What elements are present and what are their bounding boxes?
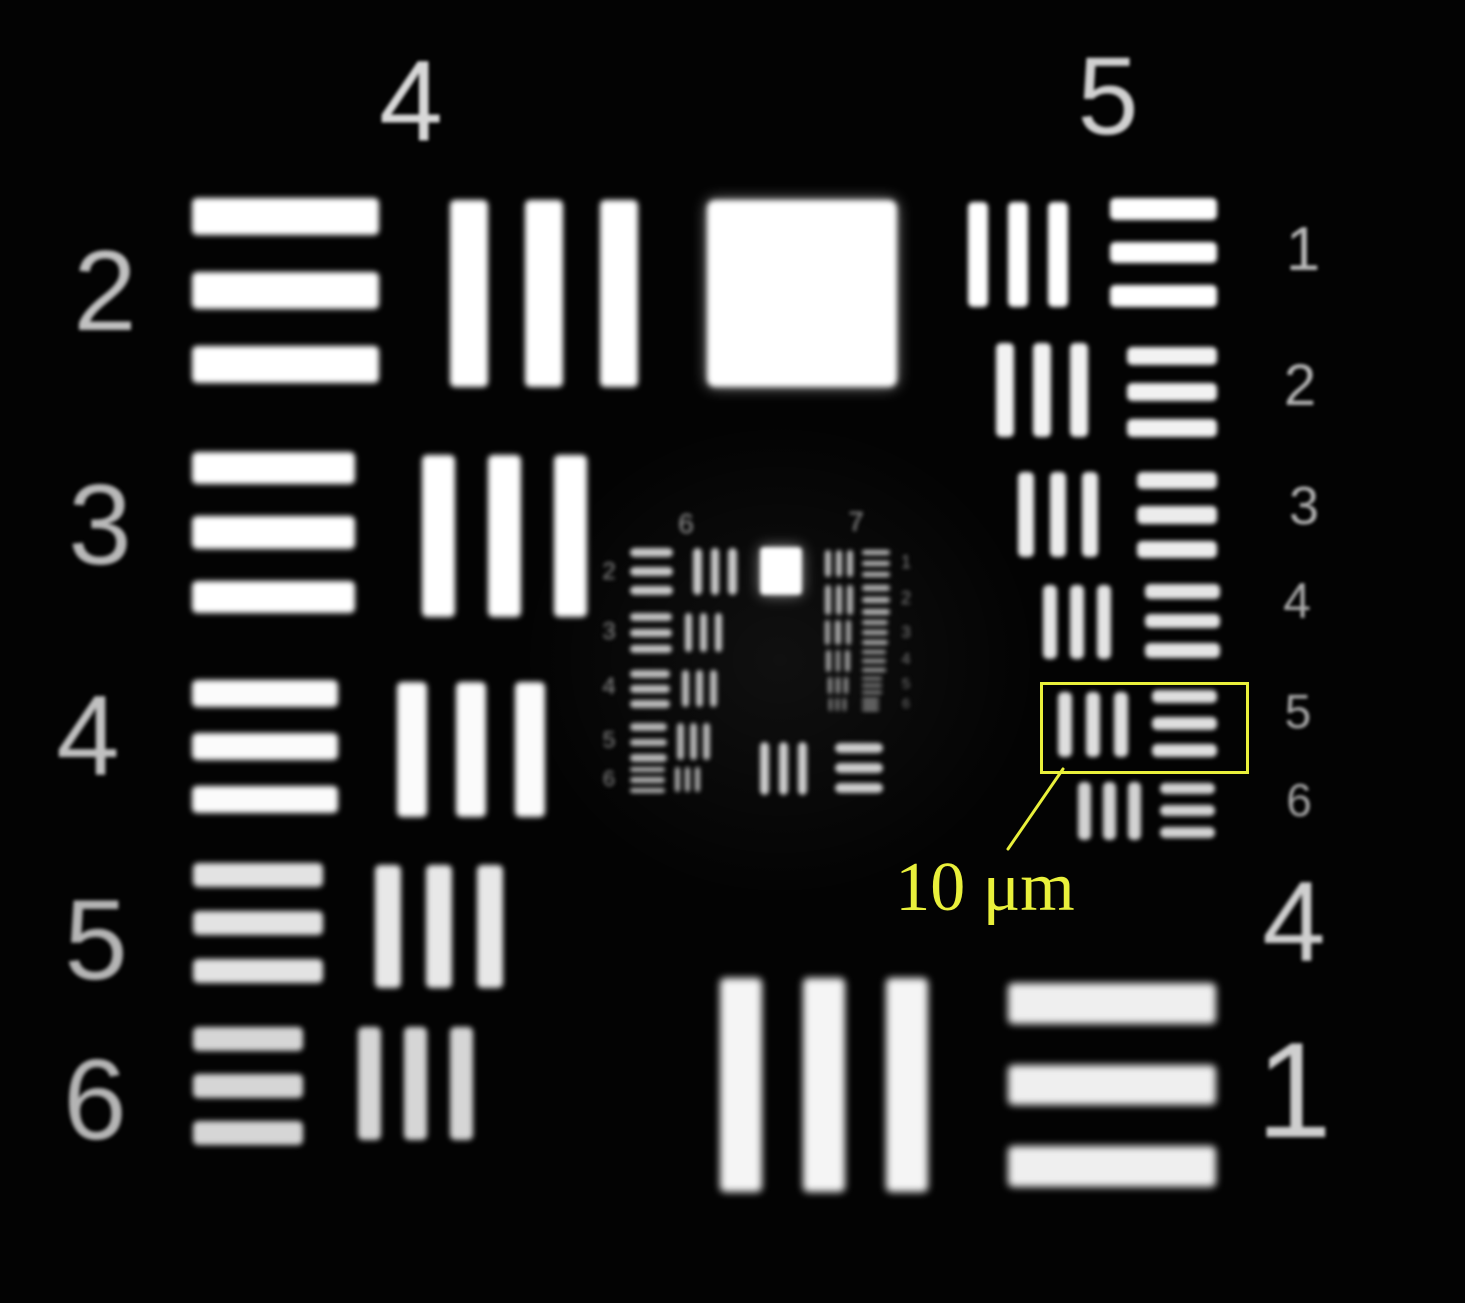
g4-el3-vbars-bar xyxy=(488,455,521,617)
g6-el1-vbars xyxy=(760,742,807,795)
g5-el2-number: 2 xyxy=(1284,357,1316,415)
g5-el5-vbars-bar xyxy=(1114,692,1128,757)
g5-el2-vbars-bar xyxy=(996,343,1014,437)
g5-el5-vbars xyxy=(1058,692,1128,757)
g4-el4-hbars xyxy=(192,680,338,813)
g5-el4-hbars-bar xyxy=(1145,643,1220,658)
g4-el6-hbars xyxy=(193,1027,303,1145)
g7-el4-hbars-bar xyxy=(862,650,886,654)
g7-el2-number: 2 xyxy=(901,589,911,607)
g6-el2-number: 2 xyxy=(602,560,615,584)
g7-el6-vbars xyxy=(829,698,846,711)
g4-el1-hbars-bar xyxy=(1008,1146,1216,1187)
g6-el3-vbars xyxy=(685,613,722,652)
g5-el5-vbars-bar xyxy=(1086,692,1100,757)
g7-el4-hbars-bar xyxy=(862,668,886,672)
g4-el4-hbars-bar xyxy=(192,786,338,813)
g4-el4-vbars-bar xyxy=(456,682,486,817)
g4-el1-vbars-bar xyxy=(720,978,762,1192)
g4-el5-hbars-bar xyxy=(193,911,323,935)
g7-el1-number: 1 xyxy=(901,553,911,571)
g6-el4-hbars-bar xyxy=(630,685,670,693)
g7-el5-vbars-bar xyxy=(836,677,840,694)
g7-el4-vbars-bar xyxy=(826,650,831,672)
g5-el6-hbars-bar xyxy=(1160,805,1215,816)
g5-el1-vbars xyxy=(968,202,1068,307)
g5-el3-vbars xyxy=(1018,472,1098,557)
g4-el6-vbars xyxy=(358,1027,473,1140)
g5-el1-hbars-bar xyxy=(1110,198,1217,220)
g7-el6-vbars-bar xyxy=(836,698,839,711)
g7-el1-vbars-bar xyxy=(847,550,853,577)
g6-el4-vbars-bar xyxy=(710,670,717,707)
g5-el1-hbars xyxy=(1110,198,1217,307)
g6-el4-vbars-bar xyxy=(696,670,703,707)
leader-line xyxy=(1008,769,1063,849)
g6-el5-hbars-bar xyxy=(630,739,667,747)
g5-el4-hbars-bar xyxy=(1145,614,1220,629)
g4-el3-vbars-bar xyxy=(422,455,455,617)
g7-el2-vbars-bar xyxy=(825,585,831,615)
g7-el3-hbars-bar xyxy=(862,630,888,635)
g6-el2-vbars-bar xyxy=(711,548,720,595)
g6-el5-vbars xyxy=(677,723,710,760)
g6-el5-number: 5 xyxy=(603,729,616,752)
g4-el4-hbars-bar xyxy=(192,680,338,707)
g5-el2-vbars-bar xyxy=(1033,343,1051,437)
g6-el1-vbars-bar xyxy=(760,742,769,795)
g4-el3-hbars-bar xyxy=(192,581,355,613)
g4-el4-vbars xyxy=(397,682,545,817)
g5-el3-hbars-bar xyxy=(1137,541,1217,558)
g4-el1-hbars-bar xyxy=(1008,983,1216,1024)
g6-el5-hbars xyxy=(630,723,667,762)
g4-el4-number: 4 xyxy=(56,680,119,794)
g5-el2-hbars-bar xyxy=(1127,347,1217,365)
g7-el5-hbars-bar xyxy=(862,677,882,680)
g5-el4-hbars-bar xyxy=(1145,584,1220,599)
g7-el2-hbars-bar xyxy=(862,597,890,603)
g4-el6-vbars-bar xyxy=(404,1027,427,1140)
g4-el1-vbars xyxy=(720,978,928,1192)
g6-el2-vbars-bar xyxy=(693,548,702,595)
g7-el3-vbars-bar xyxy=(846,620,851,645)
g4-el5-hbars-bar xyxy=(193,959,323,983)
g5-el4-vbars-bar xyxy=(1097,585,1111,659)
g5-el3-vbars-bar xyxy=(1018,472,1034,557)
g7-el5-hbars xyxy=(862,677,882,694)
g4-el6-hbars-bar xyxy=(193,1121,303,1145)
g4-el1-hbars-bar xyxy=(1008,1065,1216,1106)
g6-el4-hbars xyxy=(630,670,670,708)
g4-el6-hbars-bar xyxy=(193,1027,303,1051)
big-square xyxy=(707,200,897,387)
g5-el2-hbars xyxy=(1127,347,1217,437)
g4-el5-vbars-bar xyxy=(375,865,401,988)
g7-el5-vbars-bar xyxy=(844,677,848,694)
g7-el4-vbars xyxy=(826,650,850,672)
g6-el2-hbars-bar xyxy=(630,548,673,557)
g6-el1-hbars-bar xyxy=(835,783,883,793)
g6-el6-vbars xyxy=(675,767,700,792)
g7-el4-vbars-bar xyxy=(845,650,850,672)
g7-el4-hbars xyxy=(862,650,886,672)
g7-el5-hbars-bar xyxy=(862,684,882,687)
g4-el6-hbars-bar xyxy=(193,1074,303,1098)
g6-el1-hbars xyxy=(835,743,883,793)
g7-el2-vbars-bar xyxy=(836,585,842,615)
group-4-label-bottom: 4 xyxy=(1262,866,1325,980)
g7-el1-hbars xyxy=(862,550,890,577)
g7-el4-hbars-bar xyxy=(862,659,886,663)
g5-el6-vbars-bar xyxy=(1128,782,1141,840)
g5-el6-vbars-bar xyxy=(1078,782,1091,840)
g6-el3-hbars-bar xyxy=(630,645,672,653)
g5-el5-hbars xyxy=(1152,690,1217,757)
g4-el2-number: 2 xyxy=(73,235,136,349)
g7-el1-hbars-bar xyxy=(862,572,890,577)
g5-el6-hbars xyxy=(1160,783,1215,838)
g6-el3-vbars-bar xyxy=(700,613,707,652)
g6-el4-hbars-bar xyxy=(630,700,670,708)
g5-el4-number: 4 xyxy=(1283,576,1311,626)
g5-el5-hbars-bar xyxy=(1152,744,1217,757)
g4-el3-hbars xyxy=(192,452,355,613)
g6-el2-hbars xyxy=(630,548,673,595)
g6-el2-hbars-bar xyxy=(630,586,673,595)
g4-el2-vbars-bar xyxy=(525,200,563,387)
g5-el5-number: 5 xyxy=(1285,689,1312,737)
g4-el3-hbars-bar xyxy=(192,516,355,548)
g7-el2-hbars xyxy=(862,585,890,615)
g6-el3-hbars-bar xyxy=(630,613,672,621)
g5-el2-hbars-bar xyxy=(1127,383,1217,401)
scale-label: 10 μm xyxy=(895,853,1074,923)
group-5-label-top: 5 xyxy=(1077,42,1138,152)
g6-el1-hbars-bar xyxy=(835,743,883,753)
g7-el2-hbars-bar xyxy=(862,585,890,591)
g5-el6-vbars xyxy=(1078,782,1141,840)
g6-el1-vbars-bar xyxy=(779,742,788,795)
g6-el1-hbars-bar xyxy=(835,763,883,773)
g6-el6-hbars-bar xyxy=(630,767,665,772)
g5-el4-vbars-bar xyxy=(1070,585,1084,659)
g7-el6-vbars-bar xyxy=(829,698,832,711)
g6-el6-vbars-bar xyxy=(675,767,680,792)
g4-el4-hbars-bar xyxy=(192,733,338,760)
g7-el1-hbars-bar xyxy=(862,550,890,555)
g4-el6-number: 6 xyxy=(63,1044,126,1158)
group-6-label-top: 6 xyxy=(678,510,694,538)
g5-el6-number: 6 xyxy=(1286,777,1312,823)
g4-el5-vbars-bar xyxy=(426,865,452,988)
g5-el3-number: 3 xyxy=(1289,479,1319,533)
g4-el2-vbars xyxy=(450,200,638,387)
g4-el1-vbars-bar xyxy=(886,978,928,1192)
g5-el2-hbars-bar xyxy=(1127,419,1217,437)
g7-el6-hbars xyxy=(862,698,879,711)
g4-el4-vbars-bar xyxy=(397,682,427,817)
g4-el5-vbars-bar xyxy=(477,865,503,988)
g5-el2-vbars-bar xyxy=(1070,343,1088,437)
g5-el5-hbars-bar xyxy=(1152,717,1217,730)
g4-el2-vbars-bar xyxy=(450,200,488,387)
g7-el1-vbars xyxy=(825,550,853,577)
g7-el5-hbars-bar xyxy=(862,691,882,694)
g5-el3-hbars-bar xyxy=(1137,506,1217,523)
g5-el4-vbars-bar xyxy=(1043,585,1057,659)
g7-el1-hbars-bar xyxy=(862,561,890,566)
g7-el2-hbars-bar xyxy=(862,609,890,615)
g5-el3-vbars-bar xyxy=(1050,472,1066,557)
g5-el1-number: 1 xyxy=(1286,219,1320,281)
g7-el1-vbars-bar xyxy=(836,550,842,577)
g5-el1-vbars-bar xyxy=(968,202,988,307)
g6-el5-vbars-bar xyxy=(677,723,684,760)
g6-el6-hbars-bar xyxy=(630,788,665,793)
g5-el3-hbars xyxy=(1137,472,1217,558)
g6-el3-vbars-bar xyxy=(685,613,692,652)
g5-el5-hbars-bar xyxy=(1152,690,1217,703)
g5-el1-hbars-bar xyxy=(1110,242,1217,264)
g6-el2-vbars xyxy=(693,548,737,595)
g6-el1-vbars-bar xyxy=(798,742,807,795)
g6-el6-number: 6 xyxy=(603,768,615,790)
g6-el6-vbars-bar xyxy=(685,767,690,792)
g4-el2-hbars-bar xyxy=(192,272,379,309)
g4-el3-vbars xyxy=(422,455,587,617)
g7-el6-hbars-bar xyxy=(862,703,879,706)
g6-el3-hbars-bar xyxy=(630,629,672,637)
g7-el1-vbars-bar xyxy=(825,550,831,577)
g6-el5-hbars-bar xyxy=(630,723,667,731)
g4-el2-hbars-bar xyxy=(192,346,379,383)
g4-el1-hbars xyxy=(1008,983,1216,1187)
g4-el2-vbars-bar xyxy=(600,200,638,387)
g4-el2-hbars-bar xyxy=(192,198,379,235)
g5-el1-vbars-bar xyxy=(1048,202,1068,307)
g6-el4-number: 4 xyxy=(602,675,615,699)
g7-el3-hbars xyxy=(862,620,888,645)
g4-el1-vbars-bar xyxy=(803,978,845,1192)
g4-el6-vbars-bar xyxy=(450,1027,473,1140)
g5-el3-vbars-bar xyxy=(1082,472,1098,557)
g6-el5-hbars-bar xyxy=(630,754,667,762)
g6-el3-hbars xyxy=(630,613,672,653)
g5-el5-vbars-bar xyxy=(1058,692,1072,757)
g6-el2-vbars-bar xyxy=(728,548,737,595)
g4-el3-hbars-bar xyxy=(192,452,355,484)
g4-el3-vbars-bar xyxy=(554,455,587,617)
g7-el3-vbars-bar xyxy=(835,620,840,645)
g7-el5-number: 5 xyxy=(902,677,910,692)
g5-el2-vbars xyxy=(996,343,1088,437)
g7-el3-hbars-bar xyxy=(862,640,888,645)
g7-el2-vbars-bar xyxy=(847,585,853,615)
g5-el4-hbars xyxy=(1145,584,1220,658)
g5-el1-hbars-bar xyxy=(1110,285,1217,307)
g7-el6-hbars-bar xyxy=(862,708,879,711)
g7-el6-hbars-bar xyxy=(862,698,879,701)
g4-el3-number: 3 xyxy=(68,469,131,583)
g6-el4-vbars-bar xyxy=(682,670,689,707)
g7-el3-number: 3 xyxy=(901,624,910,641)
g4-el1-number: 1 xyxy=(1256,1022,1332,1158)
g4-el5-hbars xyxy=(193,863,323,983)
g5-el6-hbars-bar xyxy=(1160,783,1215,794)
g4-el5-hbars-bar xyxy=(193,863,323,887)
g6-el6-vbars-bar xyxy=(695,767,700,792)
g7-el3-hbars-bar xyxy=(862,620,888,625)
g6-el4-hbars-bar xyxy=(630,670,670,678)
g6-el6-hbars xyxy=(630,767,665,793)
g5-el6-hbars-bar xyxy=(1160,827,1215,838)
group-4-label-top: 4 xyxy=(379,45,443,160)
group-7-label-top: 7 xyxy=(848,508,864,536)
g6-el4-vbars xyxy=(682,670,717,707)
g7-el5-vbars-bar xyxy=(828,677,832,694)
g7-el4-number: 4 xyxy=(902,652,911,668)
g6-el6-hbars-bar xyxy=(630,777,665,782)
g5-el6-vbars-bar xyxy=(1103,782,1116,840)
g4-el2-hbars xyxy=(192,198,379,383)
g7-el6-number: 6 xyxy=(902,696,910,710)
g7-el2-vbars xyxy=(825,585,853,615)
mini-square xyxy=(760,547,802,595)
g6-el3-number: 3 xyxy=(602,620,615,644)
g6-el3-vbars-bar xyxy=(715,613,722,652)
g5-el1-vbars-bar xyxy=(1008,202,1028,307)
g6-el2-hbars-bar xyxy=(630,567,673,576)
g4-el5-vbars xyxy=(375,865,503,988)
g4-el6-vbars-bar xyxy=(358,1027,381,1140)
g5-el4-vbars xyxy=(1043,585,1111,659)
g6-el5-vbars-bar xyxy=(690,723,697,760)
g6-el5-vbars-bar xyxy=(703,723,710,760)
g7-el3-vbars xyxy=(825,620,851,645)
g7-el4-vbars-bar xyxy=(836,650,841,672)
g5-el3-hbars-bar xyxy=(1137,472,1217,489)
g4-el5-number: 5 xyxy=(64,884,127,998)
g4-el4-vbars-bar xyxy=(515,682,545,817)
micrograph-canvas: 10 μm 4523456123456416723456123456 xyxy=(0,0,1465,1303)
g7-el6-vbars-bar xyxy=(843,698,846,711)
g7-el3-vbars-bar xyxy=(825,620,830,645)
g7-el5-vbars xyxy=(828,677,848,694)
